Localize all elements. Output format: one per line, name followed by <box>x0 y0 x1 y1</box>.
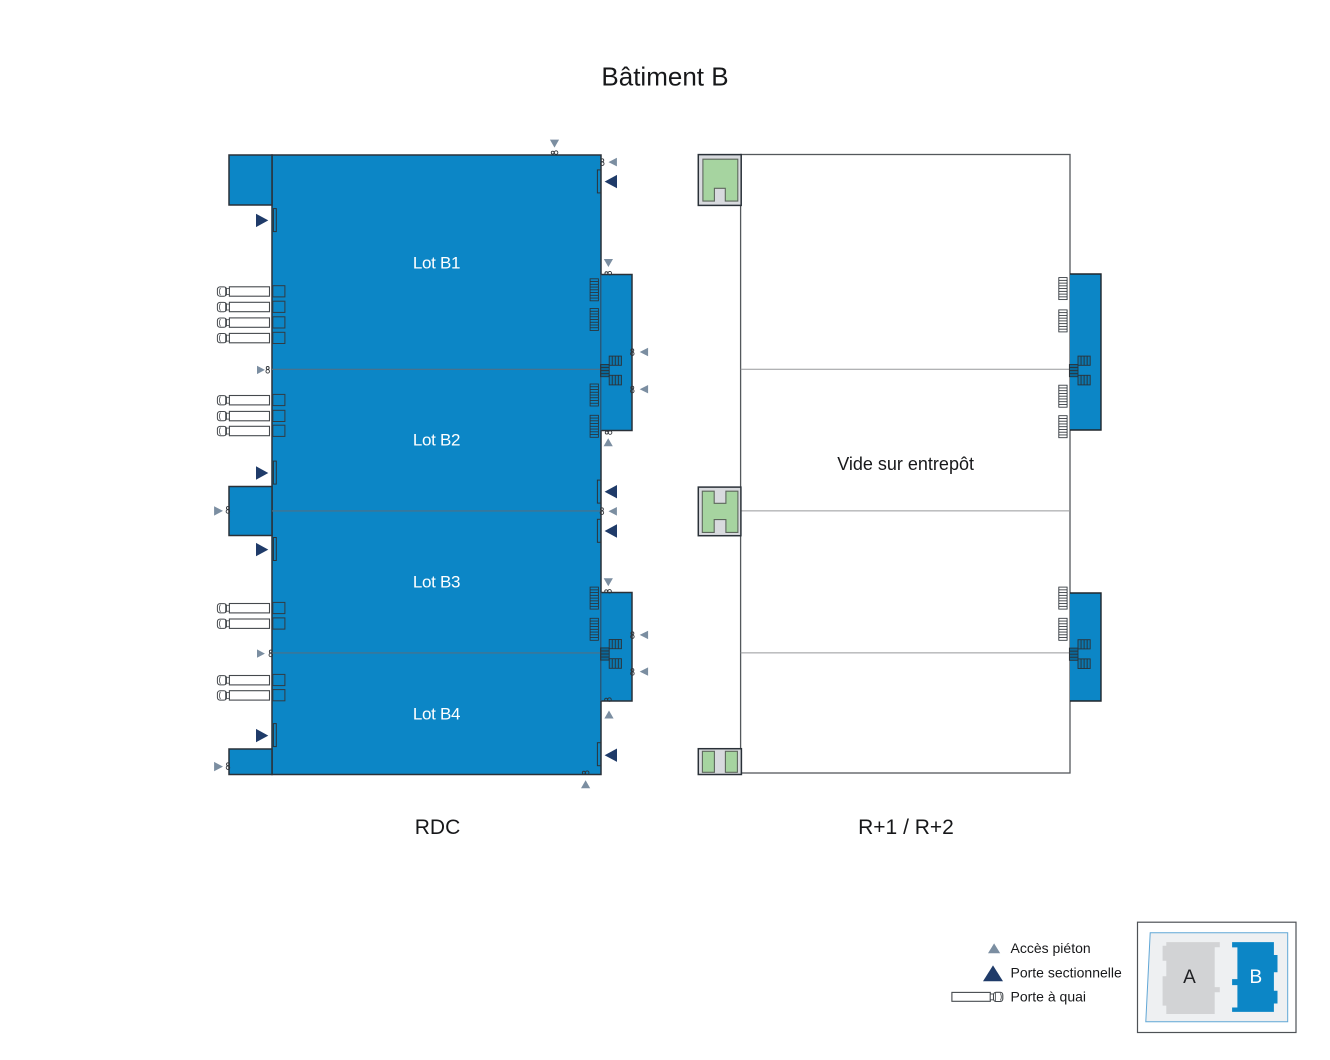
svg-text:A: A <box>1183 967 1196 988</box>
svg-text:B: B <box>1249 967 1262 988</box>
svg-text:Lot B1: Lot B1 <box>413 254 460 273</box>
svg-text:RDC: RDC <box>415 816 461 839</box>
svg-text:R+1 / R+2: R+1 / R+2 <box>858 816 954 839</box>
svg-text:Accès piéton: Accès piéton <box>1011 940 1091 956</box>
svg-text:Porte sectionnelle: Porte sectionnelle <box>1011 964 1123 980</box>
svg-text:Bâtiment B: Bâtiment B <box>601 61 728 91</box>
svg-text:Lot B2: Lot B2 <box>413 431 460 450</box>
svg-text:Porte à quai: Porte à quai <box>1011 989 1087 1005</box>
svg-text:Lot B4: Lot B4 <box>413 705 460 724</box>
svg-text:Vide sur entrepôt: Vide sur entrepôt <box>837 454 974 474</box>
svg-text:Lot B3: Lot B3 <box>413 573 460 592</box>
